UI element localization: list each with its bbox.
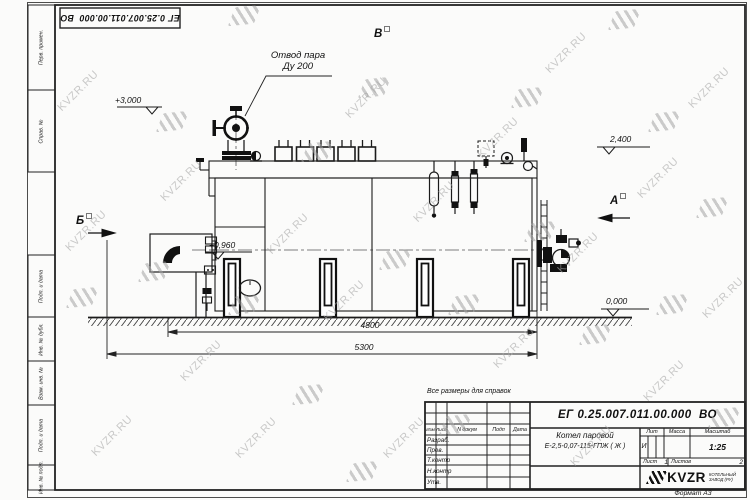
sheets-value: 2: [739, 459, 743, 466]
mass-label: Масса: [664, 429, 690, 435]
manhole: [240, 280, 261, 296]
dim-overall-length: 5300: [342, 342, 386, 352]
row-utv: Утв.: [427, 479, 441, 486]
product-name-line2: Е-2,5-0,07-115-ГПЖ ( Ж ): [531, 443, 639, 450]
view-letter-a: А: [610, 195, 618, 207]
steam-outlet-size: Ду 200: [250, 61, 346, 72]
elevation-rear-top: 2,400: [610, 134, 631, 144]
steam-leader: [245, 76, 332, 116]
corner-stamp-designation: ЕГ 0.25.007.011.00.000 ВО: [60, 8, 180, 28]
dim-boiler-length: 4800: [348, 320, 392, 330]
col-podp: Подп: [487, 427, 510, 433]
top-hatches: [275, 140, 376, 161]
section-arrows: [88, 214, 630, 236]
reference-note: Все размеры для справок: [427, 388, 511, 395]
view-ref-mark: [384, 26, 390, 32]
boiler-body: [209, 161, 537, 311]
steam-valve: [213, 106, 252, 160]
lit-value: И: [640, 436, 648, 458]
row-prov: Пров.: [427, 447, 443, 454]
col-izm: Изм: [425, 427, 436, 432]
product-name-line1: Котел паровой: [531, 431, 639, 440]
col-data: Дата: [510, 427, 530, 433]
format-label: Формат А3: [648, 490, 738, 497]
scale-label: Масштаб: [690, 429, 745, 435]
view-label-a: А: [610, 193, 626, 207]
row-razrab: Разраб.: [427, 437, 449, 444]
frame-column-sprav-no: Справ. №: [37, 91, 46, 171]
drawing-sheet: Отвод пара Ду 200 +3,000 2,400 0,000 +0,…: [0, 0, 750, 500]
view-ref-mark: [86, 213, 92, 219]
sheet-value: 1: [664, 459, 668, 466]
kvzr-logo-name: KVZR: [667, 470, 706, 485]
scale-value: 1:25: [690, 436, 745, 458]
sheet-label: Лист: [643, 459, 657, 465]
sheets-cell: Листов 2: [669, 458, 745, 466]
band-valve: [250, 152, 262, 162]
view-ref-mark: [620, 193, 626, 199]
level-gauges: [430, 161, 478, 218]
sheet-cell: Лист 1: [641, 458, 670, 466]
burner: [537, 229, 581, 272]
title-designation: ЕГ 0.25.007.011.00.000 ВО: [531, 404, 744, 426]
col-list: Лист: [436, 427, 447, 432]
view-label-v: В: [374, 26, 390, 40]
row-tkontr: Т.контр: [427, 457, 450, 464]
frame-column-perv-primen: Перв. примен.: [37, 8, 46, 88]
support-legs: [224, 259, 529, 317]
steam-outlet-annotation: Отвод пара Ду 200: [250, 50, 346, 72]
elevation-marks: [117, 107, 650, 316]
elevation-ground: 0,000: [606, 296, 627, 306]
steam-outlet-label: Отвод пара: [250, 50, 346, 61]
sensors: [478, 138, 537, 171]
kvzr-logo-sub2: ЗАВОД (РУ): [709, 477, 733, 482]
view-label-b: Б: [76, 213, 92, 227]
kvzr-logo-icon: [646, 471, 667, 484]
kvzr-logo-subtitle: КОТЕЛЬНЫЙ ЗАВОД (РУ): [709, 472, 736, 482]
frame-column-inv-podl: Инв. № подл.: [37, 438, 46, 500]
company-logo-cell: KVZR КОТЕЛЬНЫЙ ЗАВОД (РУ): [642, 467, 743, 487]
elevation-front-mid: +0,960: [209, 240, 235, 250]
elevation-valve-top: +3,000: [115, 95, 141, 105]
col-ndoc: N докум: [447, 427, 487, 433]
sheets-label: Листов: [671, 459, 691, 465]
view-letter-v: В: [374, 28, 382, 40]
lit-label: Лит: [640, 429, 664, 435]
view-letter-b: Б: [76, 215, 84, 227]
row-nkontr: Н.контр: [427, 468, 451, 475]
